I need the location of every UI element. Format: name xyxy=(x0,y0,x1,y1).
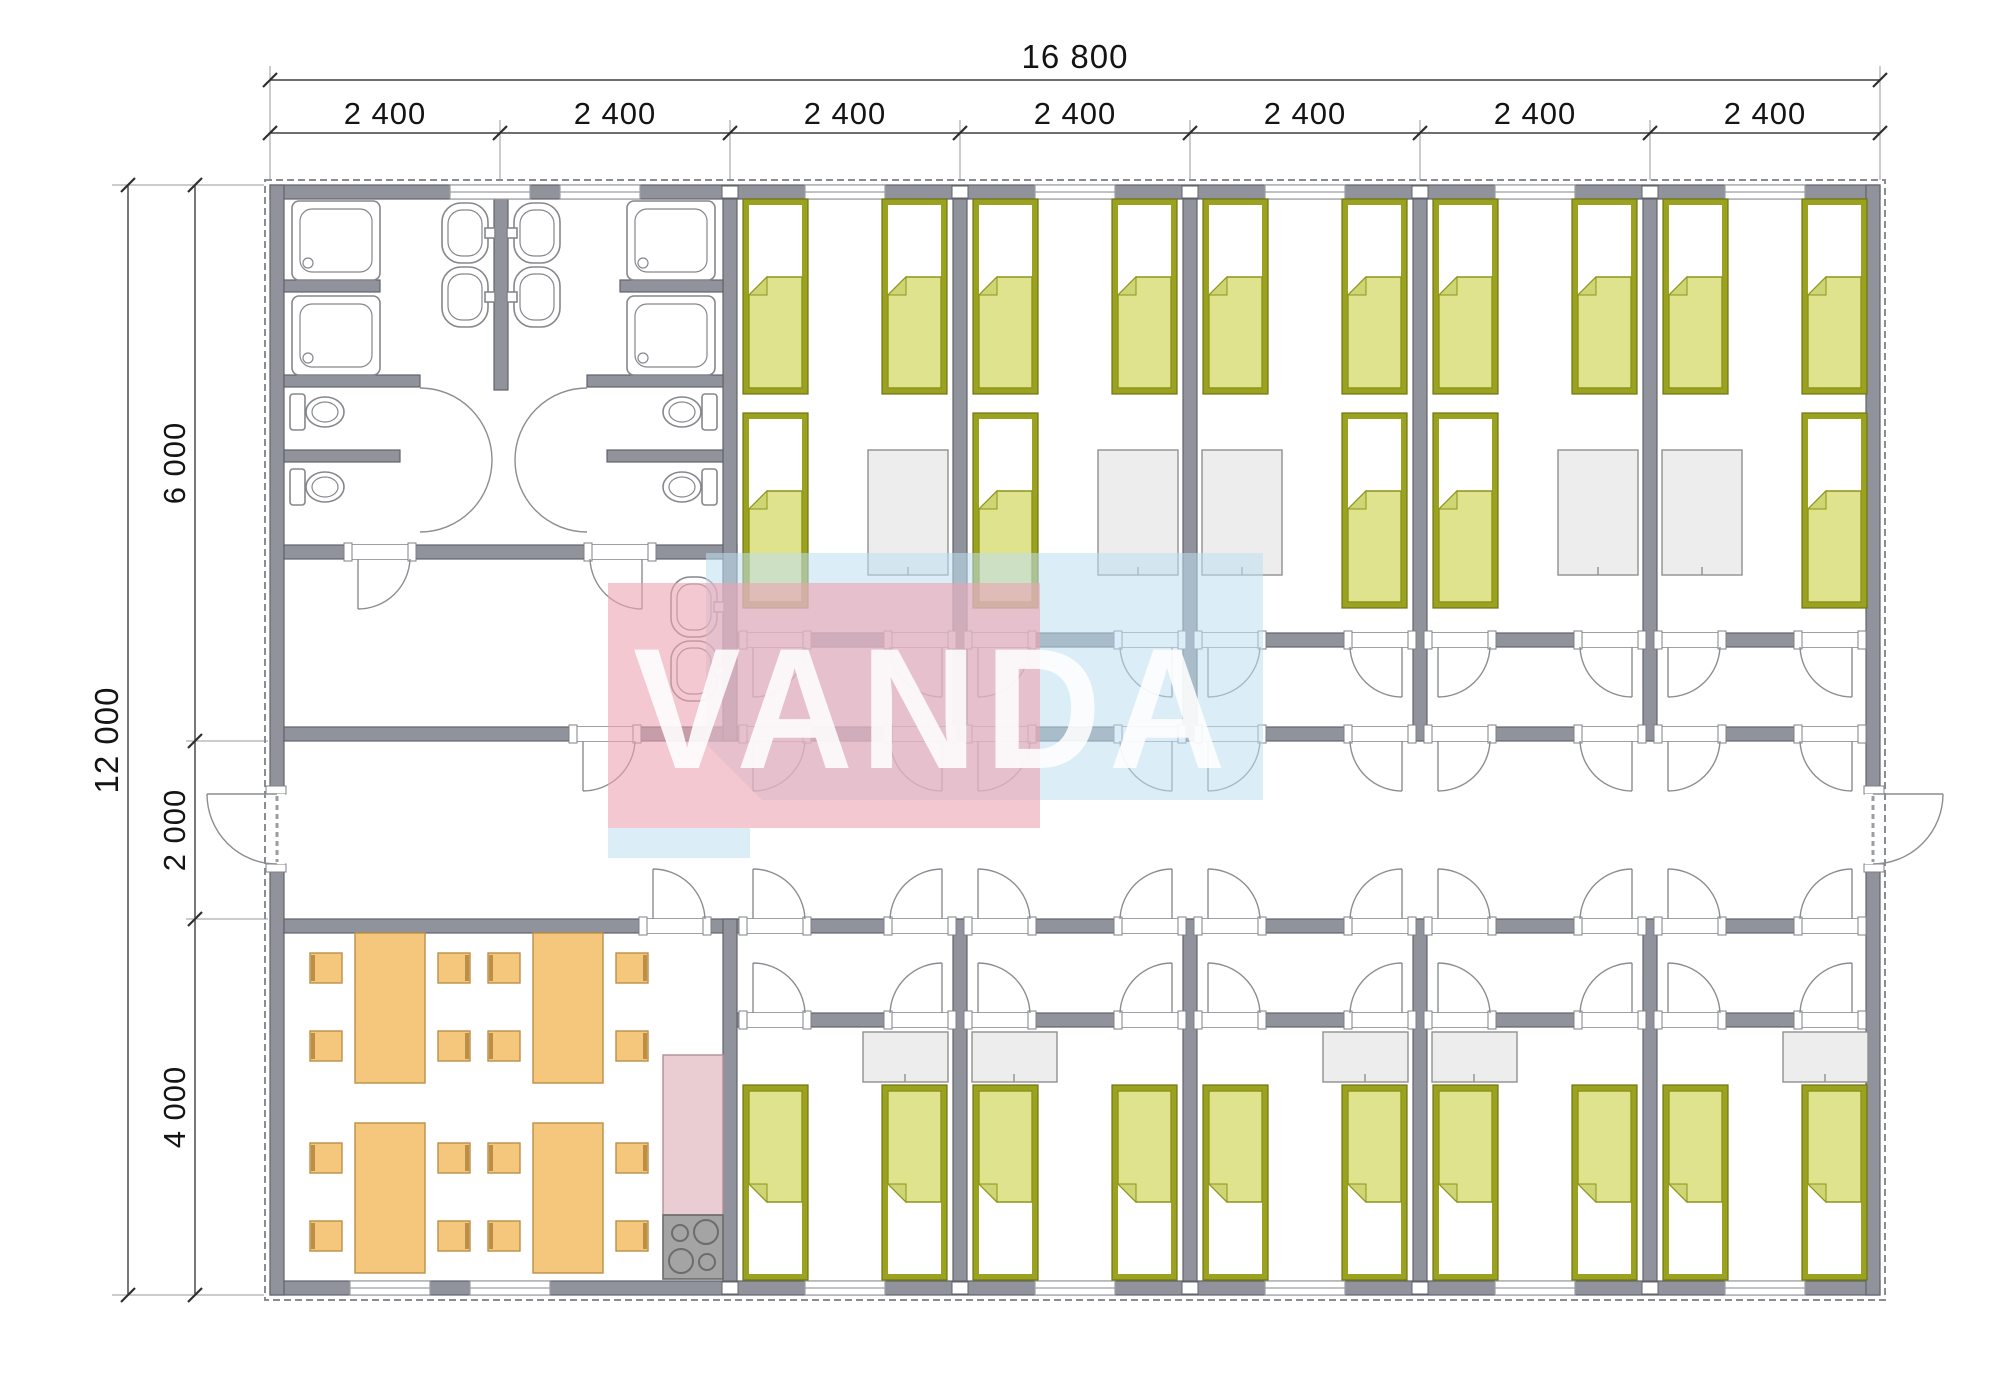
sink xyxy=(442,267,495,327)
window xyxy=(1725,185,1805,199)
bed xyxy=(1112,1085,1177,1280)
bed xyxy=(1802,1085,1867,1280)
bedrooms-top xyxy=(743,199,1867,608)
bed xyxy=(973,1085,1038,1280)
dimension-modules: 2 400 2 400 2 400 2 400 2 400 2 400 2 40… xyxy=(263,96,1887,140)
dining-table-set xyxy=(310,1123,470,1273)
interior-door xyxy=(1344,963,1416,1029)
module-label-4: 2 400 xyxy=(1034,96,1117,131)
stall-door-swings xyxy=(420,388,587,532)
module-label-2: 2 400 xyxy=(574,96,657,131)
interior-door xyxy=(964,963,1036,1029)
sink xyxy=(442,203,495,263)
dining-area xyxy=(310,933,648,1273)
module-label-6: 2 400 xyxy=(1494,96,1577,131)
wall-bath-center xyxy=(494,199,508,390)
window xyxy=(1035,185,1115,199)
interior-door xyxy=(1574,869,1646,935)
window xyxy=(1725,1281,1805,1295)
bed xyxy=(1433,413,1498,608)
dimension-overall-height: 12 000 xyxy=(88,178,135,1302)
wardrobe xyxy=(1432,1032,1517,1082)
interior-door xyxy=(1114,869,1186,935)
kitchen-area xyxy=(663,1055,723,1279)
segment-label-2000: 2 000 xyxy=(157,789,192,872)
wardrobe xyxy=(1662,450,1742,575)
interior-door xyxy=(739,869,811,935)
bed xyxy=(1433,1085,1498,1280)
window xyxy=(1035,1281,1115,1295)
bed xyxy=(1802,413,1867,608)
interior-door xyxy=(639,869,711,935)
wall-divider-top-3 xyxy=(1413,199,1427,741)
interior-door xyxy=(884,963,956,1029)
interior-door xyxy=(1424,725,1496,791)
wall-divider-bottom-3 xyxy=(1413,919,1427,1281)
shower-stall xyxy=(292,296,380,375)
bed xyxy=(1342,413,1407,608)
bed xyxy=(1342,1085,1407,1280)
dimension-overall-width: 16 800 xyxy=(263,38,1887,87)
entrance-door-right xyxy=(1864,786,1943,872)
shower-stall xyxy=(292,201,380,280)
sink xyxy=(507,203,560,263)
overall-width-label: 16 800 xyxy=(1022,38,1129,75)
dimension-height-segments: 6 000 2 000 4 000 xyxy=(157,178,202,1302)
interior-door xyxy=(1114,963,1186,1029)
interior-door xyxy=(1574,631,1646,697)
interior-door xyxy=(739,963,811,1029)
bed xyxy=(1663,1085,1728,1280)
interior-door xyxy=(1574,725,1646,791)
wardrobe xyxy=(863,1032,948,1082)
segment-label-4000: 4 000 xyxy=(157,1066,192,1149)
interior-door xyxy=(1194,869,1266,935)
dining-table-set xyxy=(488,933,648,1083)
module-label-3: 2 400 xyxy=(804,96,887,131)
interior-door xyxy=(1194,963,1266,1029)
bed xyxy=(1433,199,1498,394)
bedrooms-bottom xyxy=(743,1032,1868,1280)
window xyxy=(1265,185,1345,199)
window xyxy=(1495,1281,1575,1295)
bed xyxy=(1802,199,1867,394)
floor-plan-svg: 16 800 2 400 2 400 2 400 2 400 2 400 2 4… xyxy=(0,0,2000,1391)
window xyxy=(805,1281,885,1295)
toilet xyxy=(290,394,344,430)
shower-stall xyxy=(627,201,715,280)
interior-door xyxy=(1794,631,1866,697)
bed xyxy=(882,199,947,394)
interior-door xyxy=(1654,631,1726,697)
interior-door xyxy=(1794,963,1866,1029)
toilet xyxy=(663,394,717,430)
interior-door xyxy=(344,543,416,609)
module-label-5: 2 400 xyxy=(1264,96,1347,131)
bed xyxy=(743,1085,808,1280)
interior-door xyxy=(1424,869,1496,935)
bed xyxy=(1572,199,1637,394)
wall-divider-bottom-2 xyxy=(1183,919,1197,1281)
shower-stall xyxy=(627,296,715,375)
bed xyxy=(1342,199,1407,394)
stove xyxy=(663,1215,723,1279)
interior-door xyxy=(1344,631,1416,697)
watermark-text: VANDA xyxy=(633,613,1233,805)
bed xyxy=(1572,1085,1637,1280)
exterior-wall-left xyxy=(270,185,284,1295)
toilet xyxy=(663,469,717,505)
entrance-door-left xyxy=(207,786,286,872)
dining-table-set xyxy=(488,1123,648,1273)
wall-divider-bottom-4 xyxy=(1643,919,1657,1281)
overall-height-label: 12 000 xyxy=(88,687,125,794)
toilet xyxy=(290,469,344,505)
wall-shower-stub-left xyxy=(284,280,380,292)
wardrobe xyxy=(1323,1032,1408,1082)
window xyxy=(350,1281,430,1295)
interior-door xyxy=(1574,963,1646,1029)
watermark-blue-strip xyxy=(608,828,750,858)
wardrobe xyxy=(1783,1032,1868,1082)
interior-door xyxy=(1654,869,1726,935)
segment-label-6000: 6 000 xyxy=(157,422,192,505)
window xyxy=(1265,1281,1345,1295)
wall-wc-right-1 xyxy=(587,375,723,387)
wardrobe xyxy=(1558,450,1638,575)
bed xyxy=(1112,199,1177,394)
bed xyxy=(743,199,808,394)
module-label-7: 2 400 xyxy=(1724,96,1807,131)
dining-table-set xyxy=(310,933,470,1083)
window xyxy=(805,185,885,199)
bed xyxy=(1203,199,1268,394)
interior-door xyxy=(1344,869,1416,935)
bed xyxy=(882,1085,947,1280)
wall-divider-bottom-1 xyxy=(953,919,967,1281)
bed xyxy=(973,199,1038,394)
kitchen-counter xyxy=(663,1055,723,1215)
window xyxy=(470,1281,550,1295)
module-label-1: 2 400 xyxy=(344,96,427,131)
bed xyxy=(1203,1085,1268,1280)
interior-door xyxy=(1344,725,1416,791)
window xyxy=(560,185,640,199)
wall-divider-top-4 xyxy=(1643,199,1657,741)
interior-door xyxy=(1654,963,1726,1029)
wall-wc-right-2 xyxy=(607,450,723,462)
wall-wc-left-2 xyxy=(284,450,400,462)
interior-door xyxy=(1794,725,1866,791)
exterior-wall-right xyxy=(1866,185,1880,1295)
interior-door xyxy=(1794,869,1866,935)
window xyxy=(1495,185,1575,199)
interior-door xyxy=(1654,725,1726,791)
wall-shower-stub-right xyxy=(620,280,723,292)
interior-door xyxy=(1424,631,1496,697)
interior-door xyxy=(884,869,956,935)
interior-door xyxy=(964,869,1036,935)
vanda-watermark: VANDA xyxy=(608,553,1263,858)
interior-door xyxy=(1424,963,1496,1029)
window xyxy=(450,185,530,199)
sink xyxy=(507,267,560,327)
wardrobe xyxy=(972,1032,1057,1082)
bed xyxy=(1663,199,1728,394)
floor-plan-page: 16 800 2 400 2 400 2 400 2 400 2 400 2 4… xyxy=(0,0,2000,1391)
wall-kitchen-right xyxy=(723,919,737,1281)
wall-wc-left-1 xyxy=(284,375,420,387)
